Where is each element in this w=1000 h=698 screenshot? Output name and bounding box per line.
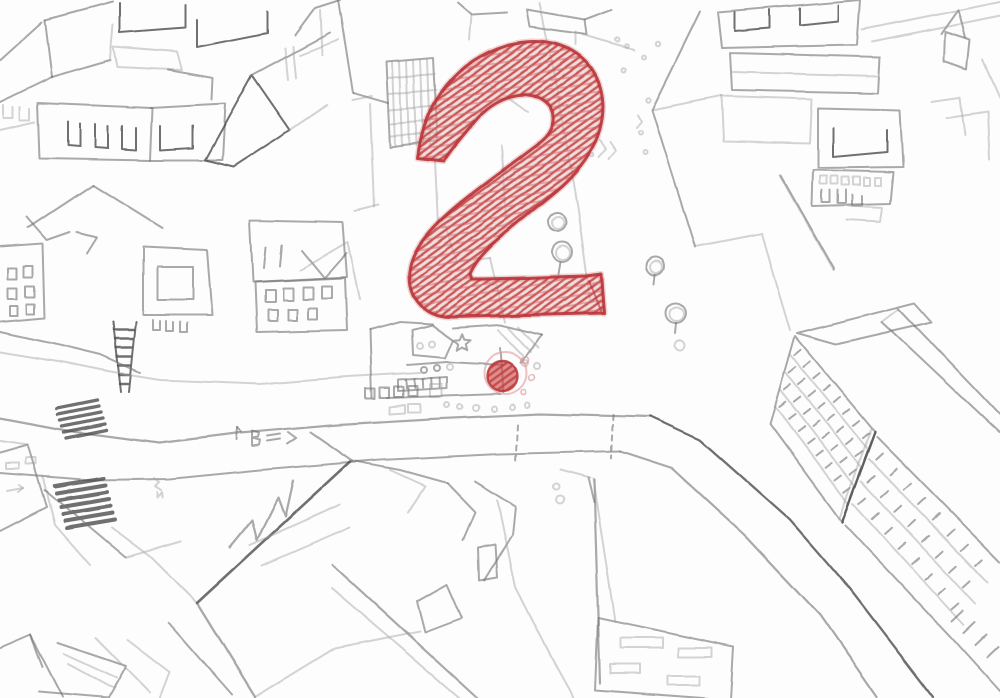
road-marking-glyph — [267, 439, 280, 441]
road-edge — [650, 417, 933, 697]
roof-edge — [0, 77, 52, 102]
roof-dormer — [120, 3, 185, 33]
roof-edge — [0, 122, 35, 130]
window — [27, 304, 35, 314]
house-roof — [370, 322, 432, 330]
building-outline — [255, 278, 347, 332]
facade-grid — [399, 61, 402, 146]
building-outline — [722, 96, 812, 143]
street-dot — [510, 405, 515, 410]
roof-hatch — [68, 664, 112, 688]
eave-line — [407, 362, 503, 365]
big-roof-ridge — [352, 461, 447, 483]
window — [533, 363, 539, 369]
window-row — [795, 350, 869, 438]
window — [10, 306, 18, 316]
building-base — [408, 404, 420, 412]
street-dot — [655, 42, 659, 46]
building-outline — [435, 160, 438, 225]
building-outline — [338, 0, 353, 93]
facade-grid — [413, 60, 416, 145]
road-marking-glyph — [287, 432, 296, 444]
star-decoration — [453, 334, 470, 350]
tree — [552, 217, 564, 229]
roof-edge — [110, 25, 113, 58]
window — [265, 290, 275, 302]
window — [678, 648, 712, 657]
window — [429, 341, 435, 347]
roof-box — [527, 10, 587, 35]
street-dot — [643, 151, 647, 155]
window — [303, 287, 313, 299]
building-base — [390, 405, 405, 414]
window — [421, 367, 427, 373]
roof-dormer — [160, 126, 193, 150]
street-dot — [492, 407, 497, 412]
street-dot — [624, 44, 628, 48]
wall-edge — [332, 564, 478, 698]
roof-edge — [0, 635, 42, 667]
roof-dormer — [197, 12, 267, 47]
window — [166, 321, 173, 331]
roof-edge — [0, 441, 28, 445]
window — [288, 309, 297, 320]
building-base — [417, 584, 462, 632]
pedestrian — [553, 484, 559, 490]
scribble — [609, 143, 616, 160]
roof-edge — [168, 70, 213, 100]
pedestrian — [556, 496, 564, 504]
building-outline — [762, 236, 790, 330]
roof-edge — [45, 2, 113, 20]
roof-hatch — [498, 330, 522, 355]
road-edge — [0, 451, 620, 480]
roof-edge — [295, 0, 340, 35]
window — [447, 364, 453, 370]
window-row — [952, 611, 998, 658]
roof-dormer — [833, 128, 887, 157]
building-outline — [944, 32, 970, 70]
building-outline — [652, 12, 700, 247]
roof-edge — [733, 72, 877, 76]
road-marking-glyph — [267, 434, 280, 436]
window — [853, 177, 860, 185]
roof-box — [113, 47, 182, 70]
window — [820, 176, 827, 184]
gable-roof — [77, 232, 97, 253]
roof-dormer — [800, 5, 838, 25]
street-dot — [445, 403, 450, 408]
window — [283, 288, 293, 300]
gable-roof — [28, 185, 93, 228]
street-dot — [473, 405, 479, 411]
roof-edge — [252, 33, 330, 75]
street-dot — [458, 405, 463, 410]
big-roof-wall — [475, 481, 515, 581]
bush — [674, 340, 684, 350]
tree-trunk — [559, 262, 561, 274]
slab-facade — [845, 525, 1000, 692]
big-roof-edge — [197, 462, 350, 603]
window — [3, 105, 13, 118]
street-dot — [615, 38, 619, 42]
building-outline — [695, 234, 762, 247]
roof-edge — [947, 112, 990, 160]
big-roof-edge — [197, 603, 255, 697]
roof-edge — [983, 60, 1000, 98]
building-base — [846, 206, 882, 222]
red-splotch — [521, 390, 526, 395]
floor-line — [869, 459, 988, 583]
tree — [650, 261, 662, 273]
road-edge — [112, 528, 197, 603]
crosswalk-dash — [516, 425, 518, 462]
roof-edge — [290, 105, 327, 130]
sketch-page — [0, 0, 1000, 698]
roof-dormer — [68, 122, 80, 146]
facade-grid — [406, 61, 409, 145]
big-roof-zigzag — [230, 481, 293, 547]
floor-line — [861, 481, 976, 604]
window — [620, 638, 662, 648]
roof-mark — [264, 247, 266, 268]
street-dot — [621, 68, 625, 72]
building-base — [255, 631, 420, 697]
roof-hatch — [518, 327, 538, 348]
roof-edge — [585, 10, 612, 20]
red-dot-marker — [487, 361, 517, 391]
gable-roof — [205, 75, 290, 167]
scribble — [599, 140, 606, 158]
window-row — [868, 476, 971, 588]
window — [180, 322, 187, 332]
roof-edge — [300, 40, 338, 55]
building-outline — [652, 96, 722, 110]
big-roof-edge — [310, 432, 352, 461]
floor-line — [775, 406, 849, 504]
floor-line — [790, 354, 868, 450]
floor-line — [780, 389, 855, 486]
window — [322, 286, 332, 298]
red-splotch — [528, 375, 534, 381]
window — [417, 343, 423, 349]
roof-edge — [45, 20, 52, 77]
window — [380, 388, 389, 398]
window — [26, 286, 35, 297]
window — [366, 389, 375, 399]
facade-grid — [392, 62, 395, 146]
street-dot — [525, 403, 530, 408]
building-outline — [370, 104, 374, 206]
tree — [557, 246, 571, 260]
window — [822, 190, 830, 202]
house-wall — [370, 330, 372, 398]
window — [268, 310, 277, 321]
roof-band — [899, 309, 1000, 415]
roof-edge — [470, 15, 472, 40]
wall-edge — [332, 588, 462, 698]
building-outline — [0, 244, 45, 322]
gable-roof — [93, 185, 162, 228]
road-marking-glyph — [252, 431, 260, 446]
roof-edge — [30, 635, 62, 697]
big-roof-edge — [447, 483, 475, 540]
roof-dormer — [122, 126, 136, 150]
street-edge — [780, 176, 833, 270]
street-dot — [646, 98, 650, 102]
roof-edge — [168, 622, 232, 695]
window — [20, 107, 30, 120]
window — [875, 178, 881, 186]
window — [6, 463, 19, 469]
pencil-drawing-layer — [0, 0, 1000, 698]
window — [26, 458, 36, 464]
roof-edge — [458, 3, 507, 15]
building-outline — [595, 618, 733, 698]
window — [610, 664, 640, 673]
building-outline — [143, 247, 212, 315]
window — [831, 176, 838, 184]
scribble — [158, 492, 163, 498]
roof-dormer — [95, 124, 108, 148]
roof-band — [882, 322, 1000, 433]
window — [864, 178, 870, 186]
roof-edge — [560, 470, 590, 478]
floor-line — [853, 503, 964, 625]
gable-roof — [27, 217, 70, 240]
street-edge — [862, 2, 1000, 30]
window — [308, 308, 317, 319]
roof-edge — [320, 10, 322, 55]
roof-dormer — [735, 10, 770, 31]
road-marking-glyph — [236, 428, 237, 440]
building-outline — [818, 108, 903, 168]
window — [838, 190, 846, 203]
roof-edge — [45, 490, 125, 557]
roof-edge — [0, 22, 42, 60]
floor-line — [785, 371, 862, 468]
scribble — [636, 115, 641, 128]
skylight — [157, 267, 193, 300]
slab-facade — [877, 437, 1000, 562]
window — [668, 676, 700, 685]
roof-edge — [128, 640, 170, 698]
window-row — [790, 368, 863, 457]
building-outline — [150, 104, 225, 160]
roof-edge — [52, 60, 110, 77]
tree-trunk — [654, 275, 655, 284]
slab-facade — [770, 336, 875, 522]
tree — [670, 307, 684, 321]
street-dot — [638, 131, 642, 135]
chimney — [285, 48, 288, 80]
window — [153, 320, 160, 330]
window — [434, 365, 440, 371]
street-edge — [872, 16, 1000, 42]
window — [24, 266, 33, 277]
sketch-canvas — [0, 0, 1000, 698]
roof-mark — [280, 245, 282, 266]
tree-trunk — [675, 323, 676, 333]
window — [842, 177, 849, 185]
window — [8, 268, 17, 279]
street-dot — [641, 55, 645, 59]
window — [8, 288, 17, 299]
street-edge — [497, 500, 573, 698]
street-edge — [0, 352, 420, 384]
window-row — [876, 454, 982, 566]
